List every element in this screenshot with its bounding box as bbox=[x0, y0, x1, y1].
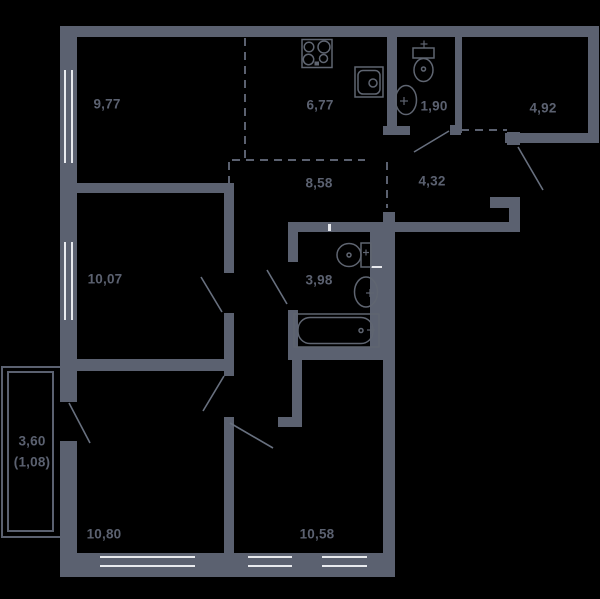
room-10-07-door-swing bbox=[201, 277, 222, 312]
room-area-label: 10,80 bbox=[87, 527, 122, 542]
room-area-label: 1,90 bbox=[420, 99, 447, 114]
bathtub-icon bbox=[294, 314, 379, 347]
room-area-label: 4,92 bbox=[529, 101, 556, 116]
washbasin-icon bbox=[355, 277, 378, 307]
room-area-label: 4,32 bbox=[418, 174, 445, 189]
toilet-icon bbox=[337, 243, 371, 267]
entrance-door-swing bbox=[518, 147, 543, 190]
room-area-label: 8,58 bbox=[305, 176, 332, 191]
balcony-reduced-area-label: (1,08) bbox=[14, 455, 50, 470]
room-10-58-door-swing bbox=[230, 423, 273, 448]
toilet-icon bbox=[413, 41, 434, 82]
room-10-80-door-swing bbox=[203, 376, 224, 411]
bathroom-door-swing bbox=[267, 270, 287, 304]
stove-icon bbox=[302, 40, 332, 68]
balcony-door-swing bbox=[69, 403, 90, 443]
washbasin-icon bbox=[396, 86, 417, 115]
room-area-label: 6,77 bbox=[306, 98, 333, 113]
balcony-area-label: 3,60 bbox=[18, 434, 45, 449]
kitchen-sink-icon bbox=[355, 67, 383, 97]
plan-overlay bbox=[0, 0, 600, 599]
room-area-label: 10,58 bbox=[300, 527, 335, 542]
room-area-label: 3,98 bbox=[305, 273, 332, 288]
wc-door-swing bbox=[414, 131, 449, 152]
room-area-label: 9,77 bbox=[93, 97, 120, 112]
room-area-label: 10,07 bbox=[88, 272, 123, 287]
floor-plan: 9,77 6,77 1,90 4,92 8,58 4,32 10,07 3,98… bbox=[0, 0, 600, 599]
